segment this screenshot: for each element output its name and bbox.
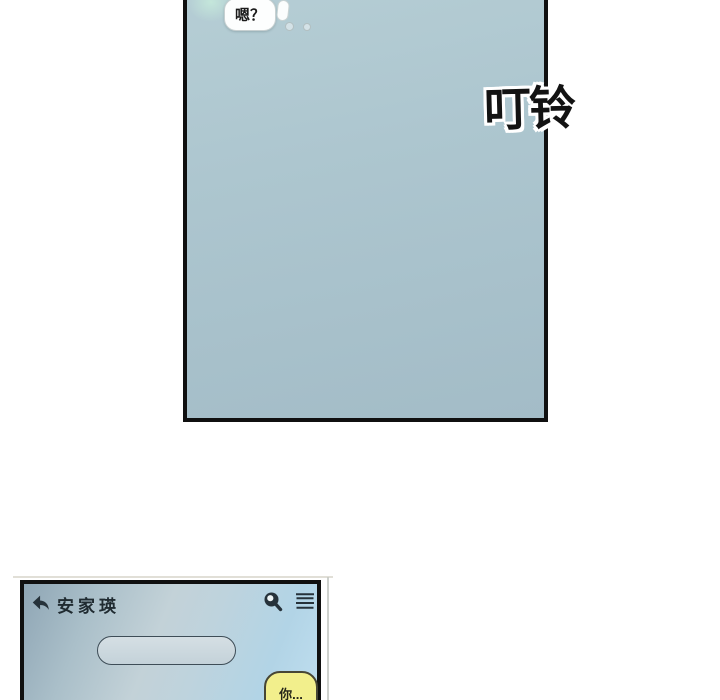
comic-panel-top: 嗯？ xyxy=(183,0,548,422)
bubble-trail-pill xyxy=(276,0,290,22)
message-bubble: 你... xyxy=(264,671,318,700)
chat-header: 安家瑛 xyxy=(24,584,317,618)
back-icon[interactable] xyxy=(30,592,52,614)
speech-bubble: 嗯？ xyxy=(224,0,276,31)
bubble-trail-dot xyxy=(303,23,311,31)
message-text: 你... xyxy=(279,687,303,700)
chat-panel-outer-edge-right xyxy=(327,577,329,700)
empty-capsule xyxy=(97,636,236,665)
speech-bubble-text: 嗯？ xyxy=(235,4,265,25)
sfx-text: 叮铃 xyxy=(483,69,575,140)
chat-panel-outer-edge-top xyxy=(13,576,333,578)
contact-name: 安家瑛 xyxy=(57,592,120,617)
search-icon[interactable] xyxy=(260,589,286,615)
bubble-trail-dot xyxy=(285,22,294,31)
comic-page: 嗯？ 叮铃 安家瑛 xyxy=(0,0,720,700)
menu-icon[interactable] xyxy=(295,592,315,611)
comic-panel-chat: 安家瑛 你... xyxy=(20,580,321,700)
